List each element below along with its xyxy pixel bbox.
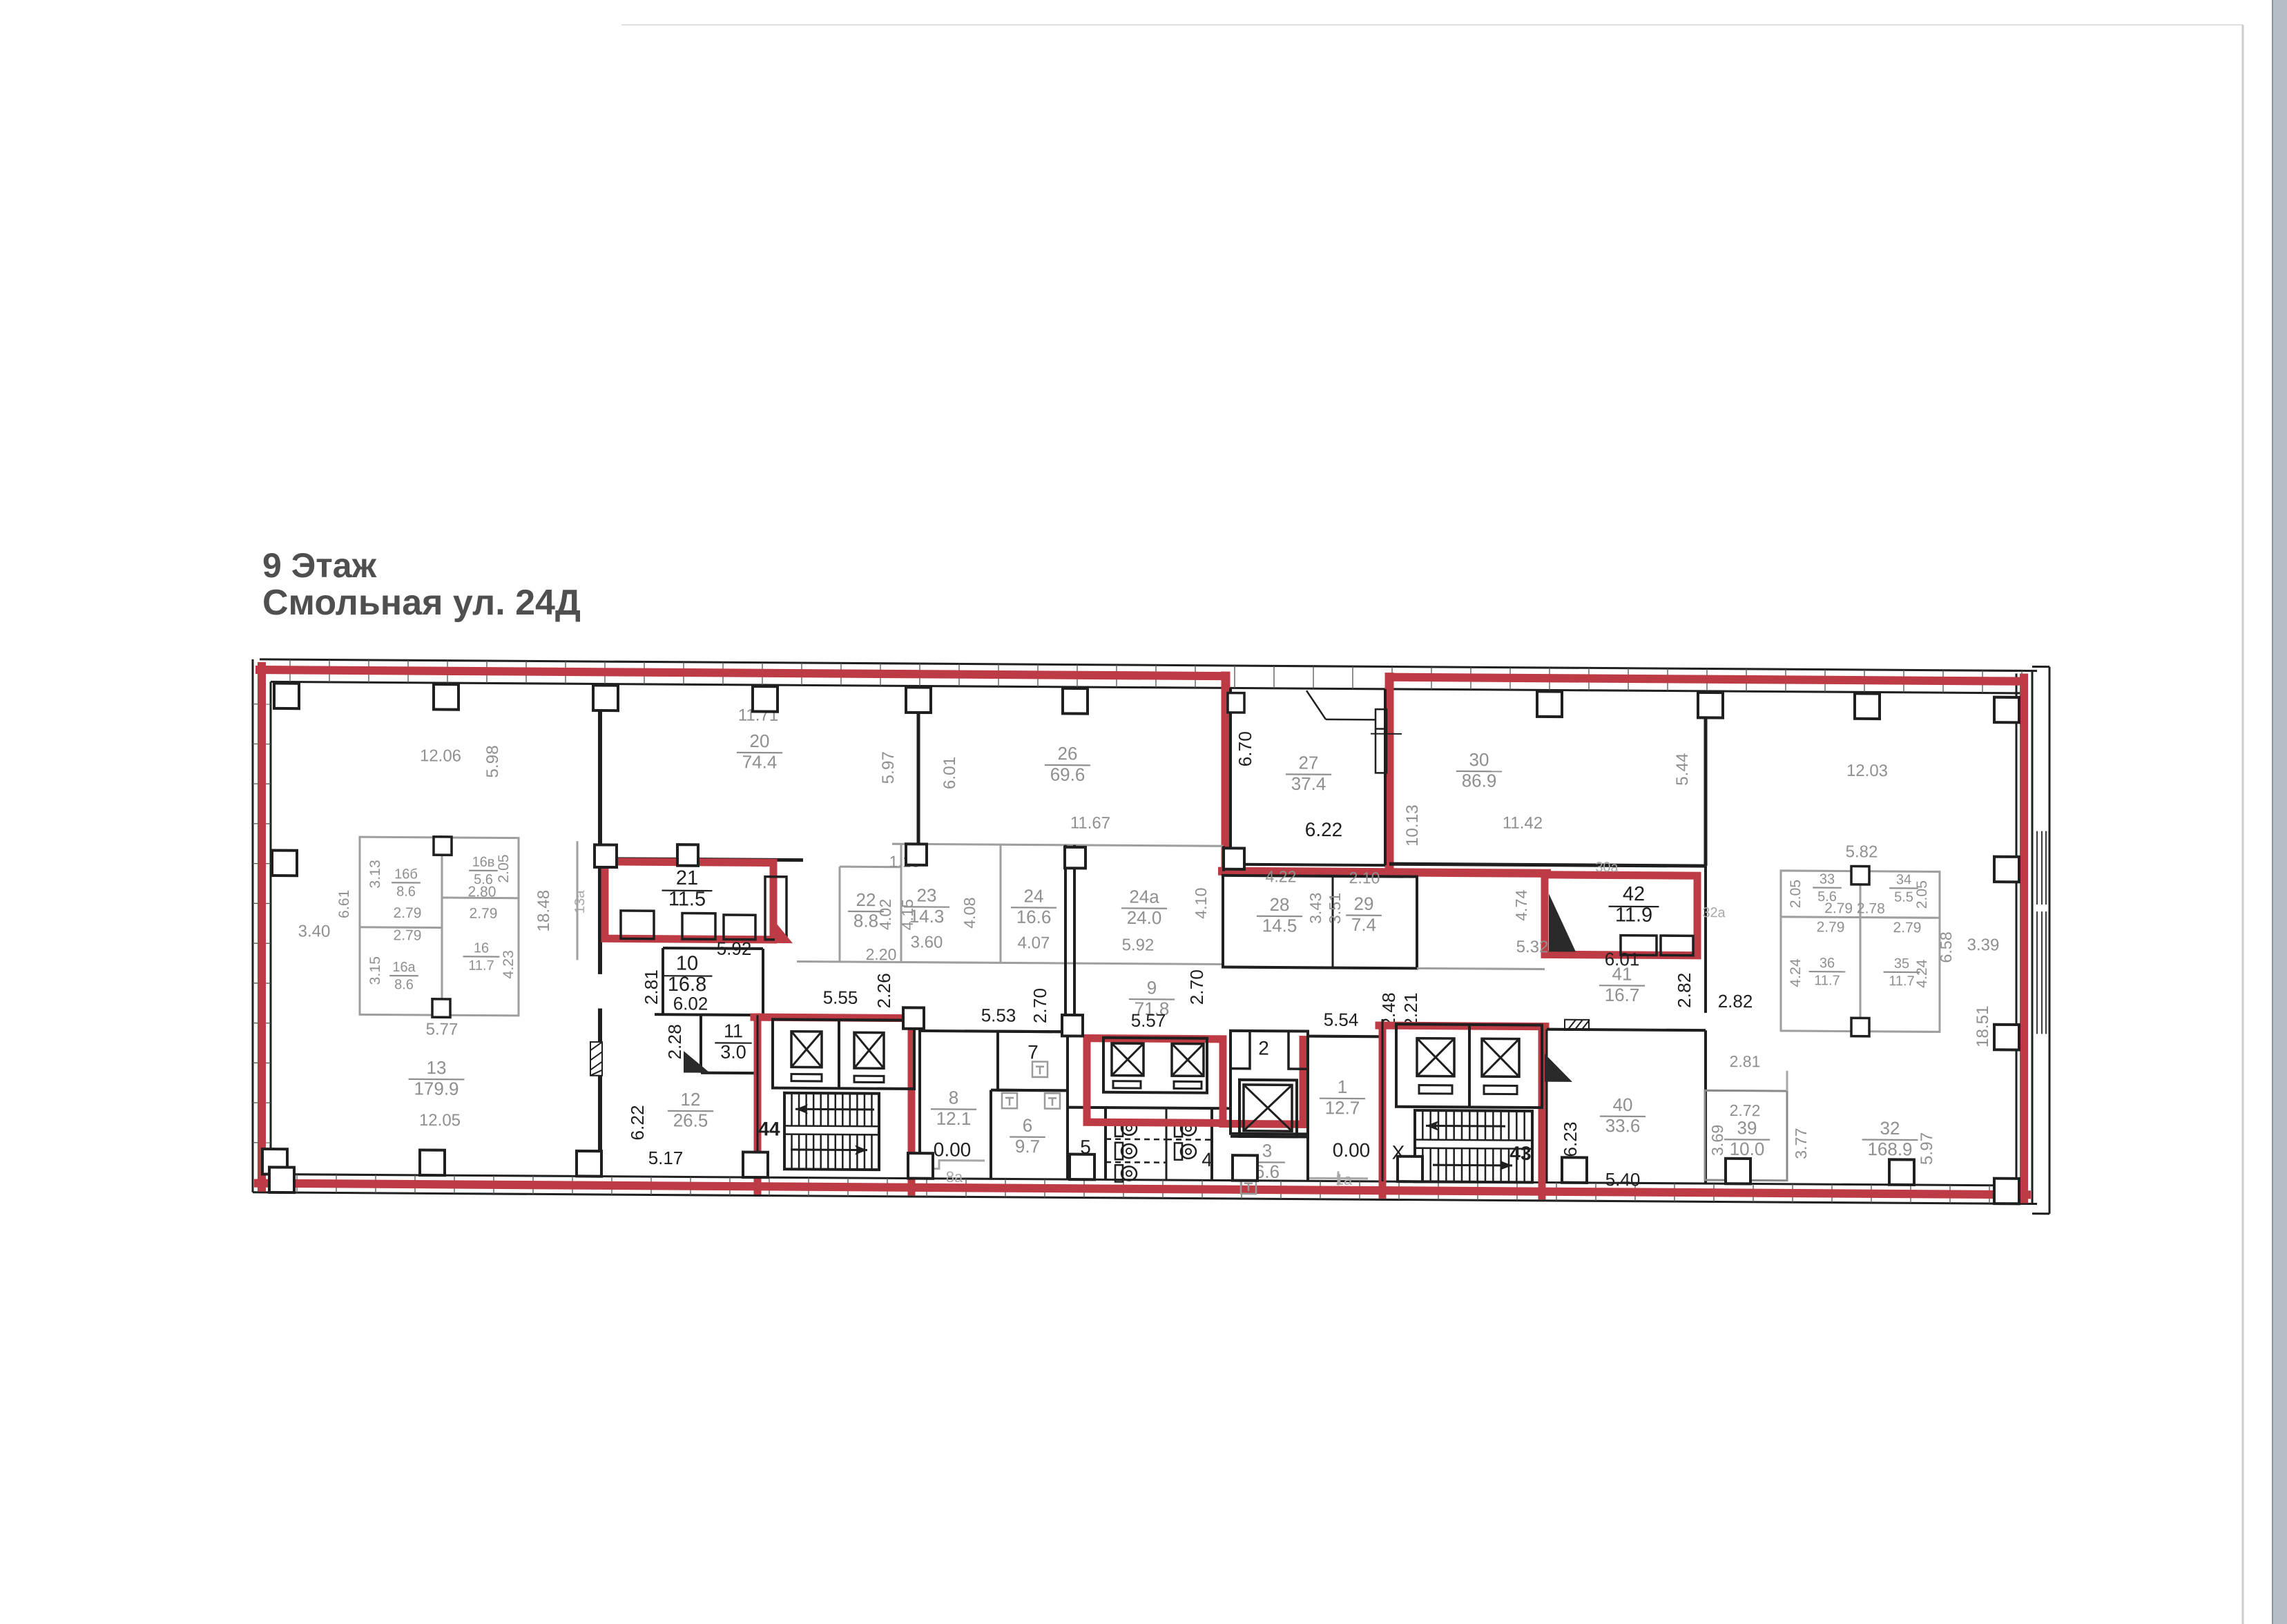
svg-text:3.13: 3.13: [367, 860, 383, 889]
svg-text:32: 32: [1880, 1118, 1900, 1139]
svg-text:11: 11: [724, 1020, 743, 1041]
svg-text:4.07: 4.07: [1018, 934, 1050, 952]
svg-text:5.57: 5.57: [1131, 1010, 1166, 1032]
svg-text:2.05: 2.05: [496, 854, 512, 883]
svg-text:4.23: 4.23: [501, 950, 517, 979]
svg-text:8.8: 8.8: [853, 910, 878, 931]
svg-text:10: 10: [676, 952, 698, 974]
svg-text:40: 40: [1613, 1094, 1633, 1115]
svg-text:9 Этаж: 9 Этаж: [262, 546, 377, 585]
svg-text:5.82: 5.82: [1846, 842, 1878, 861]
svg-text:3.60: 3.60: [911, 933, 943, 951]
svg-text:33.6: 33.6: [1605, 1115, 1641, 1137]
svg-text:11.7: 11.7: [1814, 973, 1840, 988]
svg-text:11.7: 11.7: [468, 958, 494, 973]
svg-text:3.69: 3.69: [1708, 1125, 1726, 1157]
svg-text:2.79 2.78: 2.79 2.78: [1824, 900, 1885, 917]
svg-text:9.7: 9.7: [1015, 1136, 1040, 1157]
svg-text:5.53: 5.53: [981, 1005, 1016, 1026]
svg-text:35: 35: [1894, 956, 1909, 971]
svg-text:16.7: 16.7: [1605, 985, 1640, 1006]
svg-text:14.3: 14.3: [909, 906, 945, 927]
svg-text:13а: 13а: [572, 890, 588, 914]
svg-text:3.15: 3.15: [367, 956, 383, 985]
svg-text:16а: 16а: [392, 960, 416, 975]
svg-text:44: 44: [758, 1117, 780, 1139]
svg-text:69.6: 69.6: [1050, 764, 1085, 785]
svg-text:2.81: 2.81: [641, 969, 662, 1005]
svg-text:41: 41: [1612, 963, 1632, 984]
svg-text:5.40: 5.40: [1605, 1169, 1641, 1190]
svg-text:29: 29: [1354, 893, 1374, 914]
svg-text:10.0: 10.0: [1730, 1139, 1765, 1160]
svg-text:4.08: 4.08: [961, 897, 978, 929]
svg-text:11.42: 11.42: [1503, 813, 1543, 833]
svg-text:18.48: 18.48: [534, 890, 553, 932]
svg-text:2: 2: [1258, 1036, 1269, 1058]
svg-text:32а: 32а: [1702, 905, 1726, 920]
svg-text:2.79: 2.79: [394, 905, 422, 921]
svg-text:5.17: 5.17: [648, 1148, 684, 1169]
svg-text:30а: 30а: [1595, 860, 1619, 875]
svg-text:3: 3: [1262, 1140, 1272, 1161]
svg-text:16б: 16б: [394, 867, 418, 882]
svg-text:3.40: 3.40: [298, 922, 331, 940]
svg-text:12.7: 12.7: [1325, 1097, 1360, 1119]
svg-text:6.22: 6.22: [627, 1105, 648, 1140]
svg-text:6.23: 6.23: [1560, 1121, 1581, 1157]
svg-text:6.01: 6.01: [940, 757, 959, 789]
svg-text:16в: 16в: [472, 855, 495, 870]
svg-text:22: 22: [856, 889, 876, 910]
svg-text:168.9: 168.9: [1867, 1139, 1912, 1160]
svg-text:3.43: 3.43: [1306, 893, 1324, 925]
svg-text:39: 39: [1737, 1117, 1757, 1138]
svg-text:2.70: 2.70: [1186, 969, 1207, 1005]
svg-text:24: 24: [1024, 885, 1044, 906]
svg-text:5.32: 5.32: [1516, 938, 1549, 956]
svg-text:2.81: 2.81: [1730, 1052, 1761, 1070]
svg-text:6.22: 6.22: [1305, 818, 1342, 841]
svg-text:3.0: 3.0: [720, 1041, 746, 1062]
svg-text:179.9: 179.9: [414, 1078, 459, 1099]
svg-text:6: 6: [1023, 1115, 1032, 1136]
svg-text:Смольная ул. 24Д: Смольная ул. 24Д: [262, 583, 581, 623]
svg-text:5.97: 5.97: [1918, 1132, 1936, 1165]
svg-text:12.06: 12.06: [420, 746, 461, 766]
svg-text:2.70: 2.70: [1030, 988, 1050, 1023]
svg-text:34: 34: [1896, 872, 1911, 887]
svg-text:14.5: 14.5: [1262, 915, 1297, 936]
svg-text:5.77: 5.77: [426, 1020, 459, 1038]
svg-text:2.10: 2.10: [1349, 869, 1380, 887]
svg-text:2.80: 2.80: [468, 884, 496, 900]
svg-text:5.5: 5.5: [1894, 889, 1913, 905]
svg-text:4.24: 4.24: [1914, 959, 1930, 988]
svg-text:11.9: 11.9: [1615, 904, 1652, 927]
svg-text:2.79: 2.79: [1817, 919, 1845, 935]
svg-text:6.02: 6.02: [673, 993, 708, 1014]
svg-text:5.98: 5.98: [483, 745, 502, 777]
svg-text:28: 28: [1270, 894, 1290, 915]
svg-text:6.58: 6.58: [1937, 931, 1955, 963]
svg-text:2.05: 2.05: [1914, 880, 1930, 909]
svg-text:12.1: 12.1: [936, 1108, 972, 1130]
svg-text:74.4: 74.4: [742, 751, 778, 773]
svg-text:4.24: 4.24: [1788, 958, 1804, 987]
svg-text:2.28: 2.28: [664, 1024, 685, 1059]
svg-text:30: 30: [1469, 749, 1489, 770]
svg-text:42: 42: [1623, 883, 1645, 905]
svg-text:3.77: 3.77: [1792, 1128, 1810, 1159]
svg-text:8: 8: [949, 1087, 958, 1108]
svg-text:12.03: 12.03: [1846, 762, 1888, 781]
svg-text:43: 43: [1509, 1142, 1531, 1164]
svg-text:5.97: 5.97: [879, 751, 898, 784]
svg-text:3.51: 3.51: [1326, 893, 1344, 925]
svg-text:10.13: 10.13: [1403, 804, 1422, 847]
svg-text:16.6: 16.6: [1016, 907, 1052, 928]
svg-text:7.4: 7.4: [1351, 914, 1376, 935]
svg-text:13: 13: [427, 1057, 447, 1078]
svg-text:11.5: 11.5: [668, 888, 706, 911]
svg-text:0.00: 0.00: [1333, 1139, 1370, 1161]
svg-text:2.26: 2.26: [874, 973, 894, 1008]
svg-text:2.79: 2.79: [1893, 920, 1922, 936]
svg-text:4: 4: [1202, 1148, 1213, 1170]
svg-text:6.70: 6.70: [1235, 731, 1255, 766]
svg-text:2.79: 2.79: [470, 906, 498, 922]
svg-text:24.0: 24.0: [1127, 907, 1162, 929]
svg-text:8а: 8а: [946, 1168, 963, 1186]
svg-text:11.7: 11.7: [1889, 974, 1914, 989]
svg-text:6.61: 6.61: [336, 889, 352, 918]
svg-text:86.9: 86.9: [1462, 770, 1497, 791]
svg-text:20: 20: [750, 731, 770, 751]
svg-text:26.5: 26.5: [673, 1110, 708, 1131]
svg-text:12: 12: [681, 1089, 701, 1110]
svg-text:3.39: 3.39: [1967, 936, 2000, 954]
svg-text:4.74: 4.74: [1512, 889, 1530, 921]
svg-text:23: 23: [917, 884, 937, 905]
svg-text:36: 36: [1820, 956, 1835, 971]
svg-text:27: 27: [1299, 752, 1319, 773]
svg-text:24а: 24а: [1129, 886, 1159, 907]
svg-text:5.44: 5.44: [1673, 753, 1692, 785]
svg-text:5.92: 5.92: [1122, 936, 1155, 954]
svg-text:12.05: 12.05: [419, 1111, 461, 1130]
svg-text:18.51: 18.51: [1974, 1005, 1992, 1047]
svg-text:4.02: 4.02: [876, 899, 894, 931]
svg-text:26: 26: [1058, 743, 1078, 764]
svg-text:4.22: 4.22: [1266, 867, 1297, 885]
svg-text:5.55: 5.55: [823, 987, 858, 1008]
svg-text:2.82: 2.82: [1674, 973, 1695, 1008]
svg-text:7: 7: [1027, 1041, 1039, 1063]
svg-text:16: 16: [474, 940, 489, 956]
svg-text:33: 33: [1820, 871, 1835, 887]
svg-text:0.00: 0.00: [934, 1138, 971, 1161]
svg-text:2.05: 2.05: [1788, 880, 1804, 909]
svg-text:9: 9: [1147, 977, 1157, 998]
svg-text:2.82: 2.82: [1718, 991, 1753, 1012]
svg-text:37.4: 37.4: [1291, 773, 1326, 795]
svg-text:2.79: 2.79: [394, 927, 422, 943]
svg-text:2.72: 2.72: [1730, 1101, 1761, 1119]
svg-text:21: 21: [676, 867, 698, 889]
svg-text:1: 1: [1338, 1076, 1347, 1097]
svg-text:8.6: 8.6: [394, 977, 414, 992]
svg-text:4.10: 4.10: [1192, 887, 1210, 919]
svg-text:11.67: 11.67: [1070, 813, 1110, 833]
svg-text:8.6: 8.6: [396, 884, 416, 899]
svg-text:5.54: 5.54: [1324, 1009, 1359, 1030]
svg-text:2.20: 2.20: [866, 945, 897, 963]
